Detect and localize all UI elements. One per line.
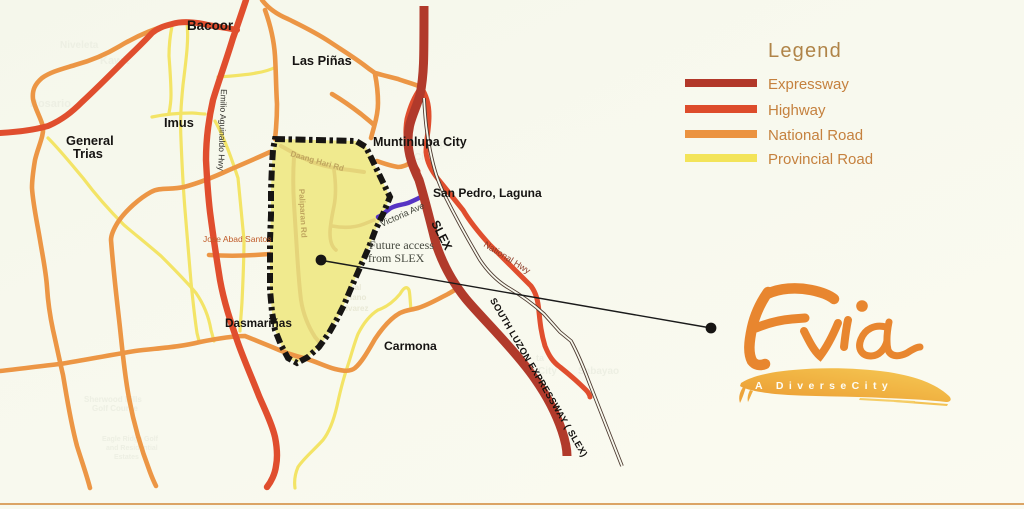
svg-text:Highway: Highway — [768, 102, 826, 119]
svg-text:Sherwood Hills: Sherwood Hills — [84, 395, 142, 404]
svg-text:National Road: National Road — [768, 127, 863, 144]
svg-text:A DiverseCity: A DiverseCity — [755, 380, 893, 392]
svg-text:Imus: Imus — [164, 115, 194, 130]
svg-text:Jose Abad Santos: Jose Abad Santos — [203, 234, 272, 244]
svg-text:Niveleta: Niveleta — [60, 40, 99, 51]
svg-text:Legend: Legend — [768, 40, 842, 62]
svg-text:from SLEX: from SLEX — [368, 251, 425, 265]
svg-text:Las Piñas: Las Piñas — [292, 53, 352, 68]
svg-text:Muntinlupa City: Muntinlupa City — [373, 135, 467, 149]
svg-text:Expressway: Expressway — [768, 76, 849, 93]
svg-text:Provincial Road: Provincial Road — [768, 151, 873, 168]
svg-text:San Pedro, Laguna: San Pedro, Laguna — [433, 186, 542, 200]
svg-text:Estates: Estates — [114, 454, 139, 461]
svg-text:Dasmariñas: Dasmariñas — [225, 316, 292, 330]
svg-text:Future access: Future access — [369, 238, 434, 252]
svg-text:and Residential: and Residential — [106, 445, 158, 452]
svg-text:Eagle Ridge Golf: Eagle Ridge Golf — [102, 436, 159, 443]
svg-text:Trias: Trias — [73, 146, 103, 161]
svg-text:Carmona: Carmona — [384, 339, 437, 353]
svg-text:Bacoor: Bacoor — [187, 18, 234, 33]
